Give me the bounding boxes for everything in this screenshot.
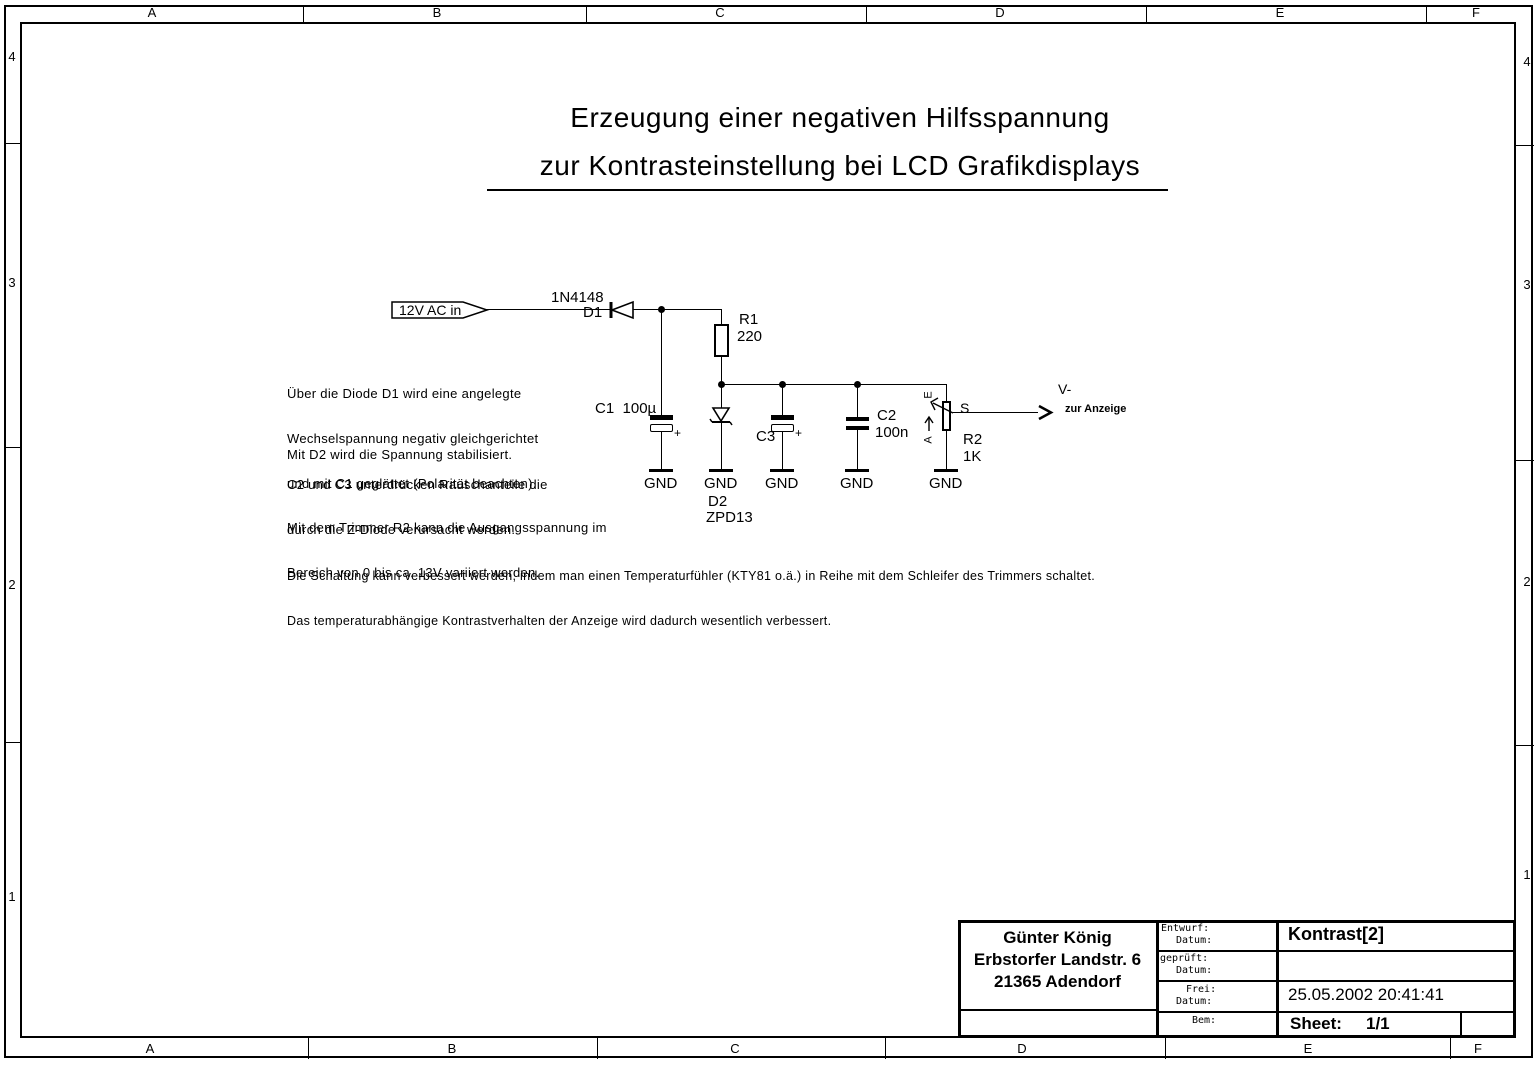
zener-d2-icon [708, 403, 736, 429]
output-arrow-icon [1036, 404, 1056, 422]
titleblock-divider [1156, 1011, 1279, 1013]
r2-ref-label: R2 [963, 431, 982, 448]
author-city: 21365 Adendorf [958, 971, 1157, 993]
capacitor-c1-plate [650, 424, 673, 432]
gnd-label: GND [840, 475, 873, 492]
gnd-bar [845, 469, 869, 472]
wire [721, 422, 722, 470]
gnd-label: GND [765, 475, 798, 492]
wire [661, 309, 662, 416]
wire [632, 309, 722, 310]
grid-row-label-right: 4 [1520, 54, 1534, 69]
junction-dot [658, 306, 665, 313]
field-datum: Datum: [1176, 965, 1212, 976]
grid-divider [303, 5, 304, 22]
field-datum: Datum: [1176, 996, 1212, 1007]
grid-row-label-left: 4 [5, 49, 19, 64]
resistor-r1-body [714, 324, 729, 357]
wire [721, 384, 947, 385]
capacitor-c2-plate [846, 417, 869, 421]
note-line: Mit dem Trimmer R2 kann die Ausgangsspan… [287, 520, 607, 535]
junction-dot [779, 381, 786, 388]
gnd-bar [709, 469, 733, 472]
d1-ref-label: D1 [583, 304, 602, 321]
junction-dot [854, 381, 861, 388]
note-paragraph-5: Die Schaltung kann verbessert werden, in… [287, 539, 1095, 644]
sheet-value: 1/1 [1366, 1014, 1390, 1034]
grid-col-label-bottom: D [1002, 1041, 1042, 1056]
grid-col-label-top: E [1260, 5, 1300, 20]
document-datetime: 25.05.2002 20:41:41 [1288, 985, 1444, 1005]
r2-pin-a-label: A [925, 430, 937, 442]
wire [721, 356, 722, 384]
wire [721, 309, 722, 324]
title-underline [487, 189, 1168, 191]
titleblock-divider [1276, 980, 1516, 982]
d2-ref-label: D2 [708, 493, 727, 510]
grid-col-label-bottom: F [1458, 1041, 1498, 1056]
sheet-label: Sheet: [1290, 1014, 1342, 1034]
page-title-line1: Erzeugung einer negativen Hilfsspannung [490, 102, 1190, 134]
grid-divider [5, 742, 20, 743]
grid-row-label-left: 2 [5, 577, 19, 592]
d2-part-label: ZPD13 [706, 509, 753, 526]
r2-pin-e-label: E [925, 385, 937, 397]
c3-polarity-mark: + [795, 426, 802, 440]
field-frei: Frei: [1186, 984, 1216, 995]
c1-polarity-mark: + [674, 426, 681, 440]
wire [857, 430, 858, 470]
gnd-bar [770, 469, 794, 472]
titleblock-divider [1276, 920, 1279, 1038]
grid-row-label-right: 1 [1520, 867, 1534, 882]
grid-divider [1516, 745, 1534, 746]
gnd-label: GND [644, 475, 677, 492]
field-bem: Bem: [1192, 1015, 1216, 1026]
capacitor-c2-plate [846, 426, 869, 430]
r2-pin-a-text: A [923, 436, 935, 443]
capacitor-c3-plate [771, 415, 794, 420]
r1-value-label: 220 [737, 328, 762, 345]
grid-divider [866, 5, 867, 22]
wire [661, 432, 662, 470]
field-geprueft: geprüft: [1160, 953, 1208, 964]
gnd-label: GND [929, 475, 962, 492]
titleblock-divider [1276, 1011, 1516, 1013]
grid-divider [597, 1038, 598, 1059]
grid-row-label-left: 1 [5, 889, 19, 904]
gnd-label: GND [704, 475, 737, 492]
r2-pin-s-label: S [960, 400, 969, 416]
input-flag-label: 12V AC in [399, 302, 461, 318]
grid-divider [5, 143, 20, 144]
grid-divider [1146, 5, 1147, 22]
grid-row-label-left: 3 [5, 275, 19, 290]
c2-value-label: 100n [875, 424, 908, 441]
grid-col-label-top: F [1456, 5, 1496, 20]
grid-divider [1516, 145, 1534, 146]
grid-divider [885, 1038, 886, 1059]
grid-divider [1165, 1038, 1166, 1059]
field-entwurf: Entwurf: [1161, 923, 1209, 934]
output-net-label: V- [1058, 381, 1071, 397]
note-line: Die Schaltung kann verbessert werden, in… [287, 569, 1095, 584]
grid-divider [586, 5, 587, 22]
grid-row-label-right: 3 [1520, 277, 1534, 292]
grid-divider [1450, 1038, 1451, 1059]
titleblock-divider [1156, 980, 1279, 982]
output-sub-label: zur Anzeige [1065, 403, 1126, 415]
r2-value-label: 1K [963, 448, 981, 465]
author-name: Günter König [958, 927, 1157, 949]
page-title-line2: zur Kontrasteinstellung bei LCD Grafikdi… [490, 150, 1190, 182]
gnd-bar [649, 469, 673, 472]
grid-col-label-bottom: A [130, 1041, 170, 1056]
titleblock-divider [1276, 950, 1516, 952]
wire [782, 384, 783, 416]
grid-col-label-bottom: C [715, 1041, 755, 1056]
grid-row-label-right: 2 [1520, 574, 1534, 589]
grid-col-label-bottom: B [432, 1041, 472, 1056]
titleblock-divider [1156, 950, 1279, 952]
grid-divider [308, 1038, 309, 1059]
gnd-bar [934, 469, 958, 472]
author-street: Erbstorfer Landstr. 6 [958, 949, 1157, 971]
grid-divider [5, 447, 20, 448]
note-line: Das temperaturabhängige Kontrastverhalte… [287, 614, 1095, 629]
grid-divider [1426, 5, 1427, 22]
field-datum: Datum: [1176, 935, 1212, 946]
c2-ref-label: C2 [877, 407, 896, 424]
grid-col-label-top: B [417, 5, 457, 20]
grid-col-label-bottom: E [1288, 1041, 1328, 1056]
junction-dot [718, 381, 725, 388]
grid-col-label-top: C [700, 5, 740, 20]
r2-pin-e-text: E [923, 391, 935, 398]
c3-ref-label: C3 [756, 428, 775, 445]
grid-col-label-top: D [980, 5, 1020, 20]
r1-ref-label: R1 [739, 311, 758, 328]
titleblock-divider [958, 1009, 1158, 1011]
note-line: Über die Diode D1 wird eine angelegte [287, 386, 538, 401]
c1-label: C1 100µ [595, 400, 656, 417]
wire [782, 432, 783, 470]
diode-d1-icon [605, 297, 639, 323]
wire [857, 384, 858, 418]
titleblock-author: Günter König Erbstorfer Landstr. 6 21365… [958, 927, 1157, 993]
titleblock-divider [1460, 1011, 1462, 1038]
document-title: Kontrast[2] [1288, 924, 1384, 945]
grid-col-label-top: A [132, 5, 172, 20]
grid-divider [1516, 460, 1534, 461]
